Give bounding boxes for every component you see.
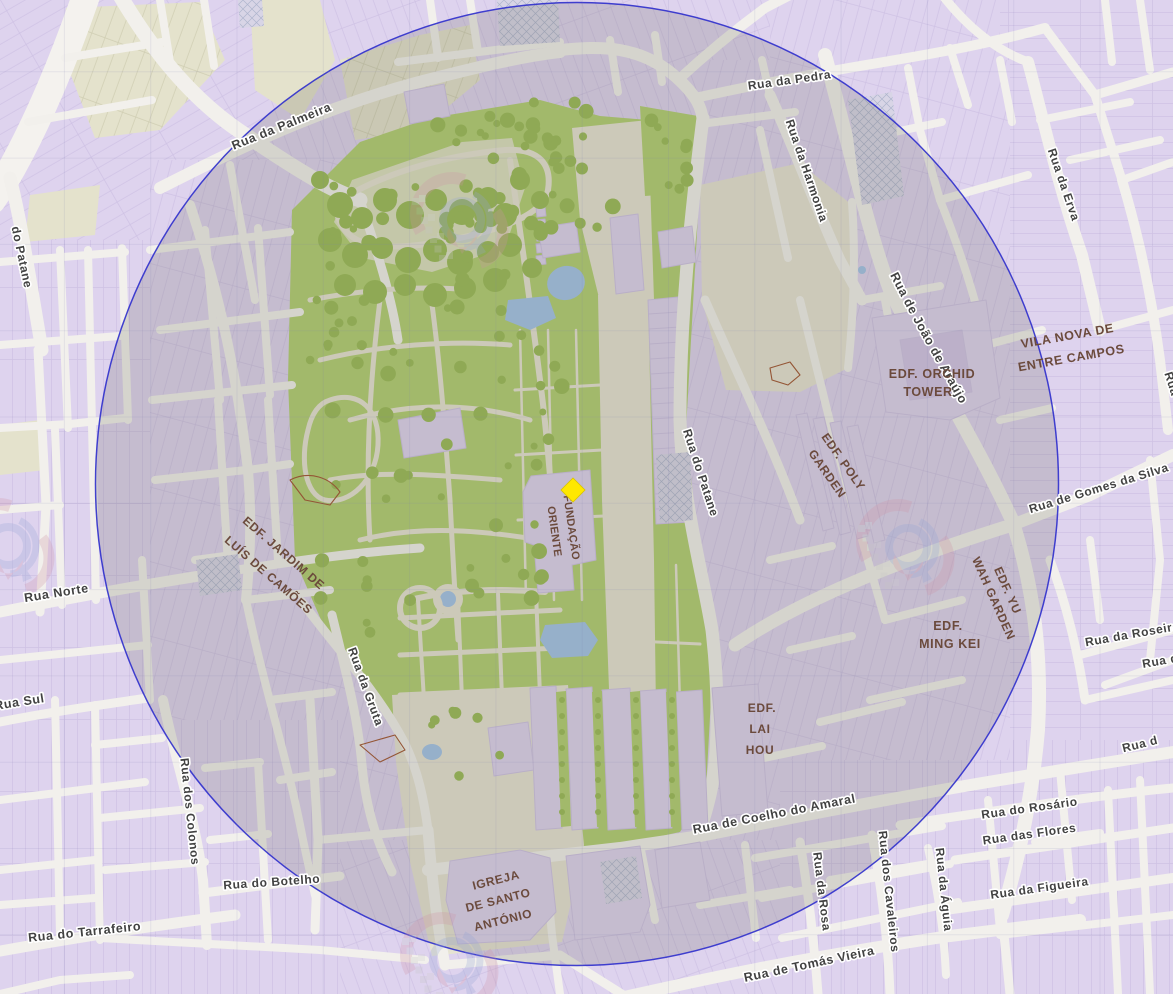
svg-text:HOU: HOU — [746, 743, 774, 757]
svg-text:EDF.: EDF. — [933, 619, 963, 633]
svg-text:EDF. ORCHID: EDF. ORCHID — [889, 367, 975, 381]
svg-text:LAI: LAI — [749, 722, 770, 736]
svg-text:TOWER: TOWER — [903, 385, 952, 399]
svg-text:EDF.: EDF. — [748, 701, 776, 715]
svg-text:MING KEI: MING KEI — [919, 637, 981, 651]
